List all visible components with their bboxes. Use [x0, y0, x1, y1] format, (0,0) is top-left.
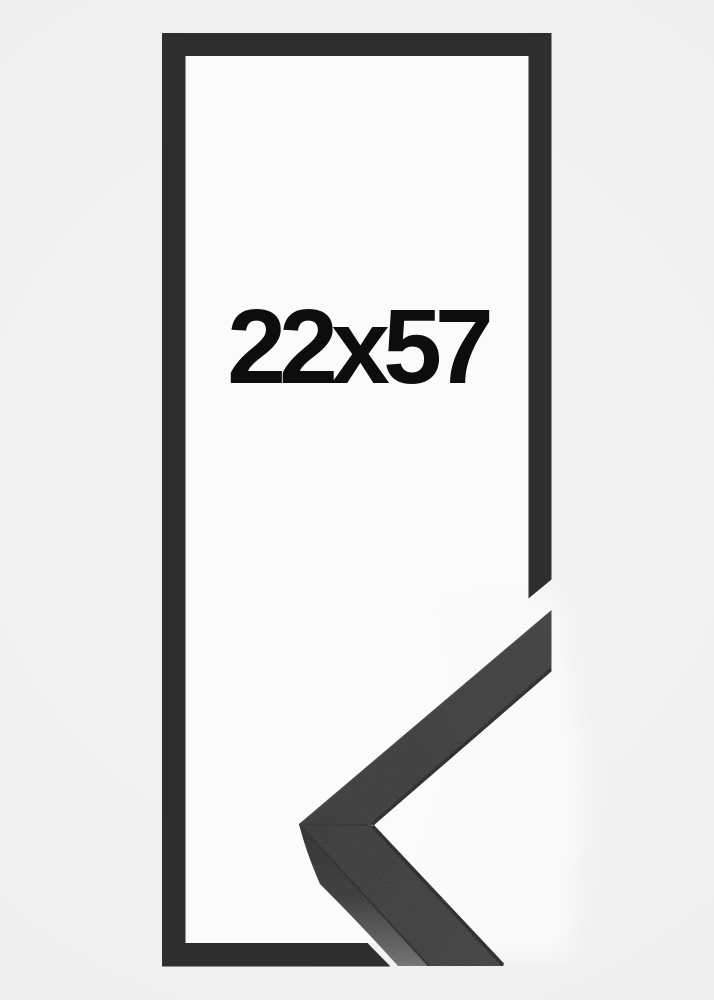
svg-text:22x57: 22x57 [227, 288, 490, 406]
